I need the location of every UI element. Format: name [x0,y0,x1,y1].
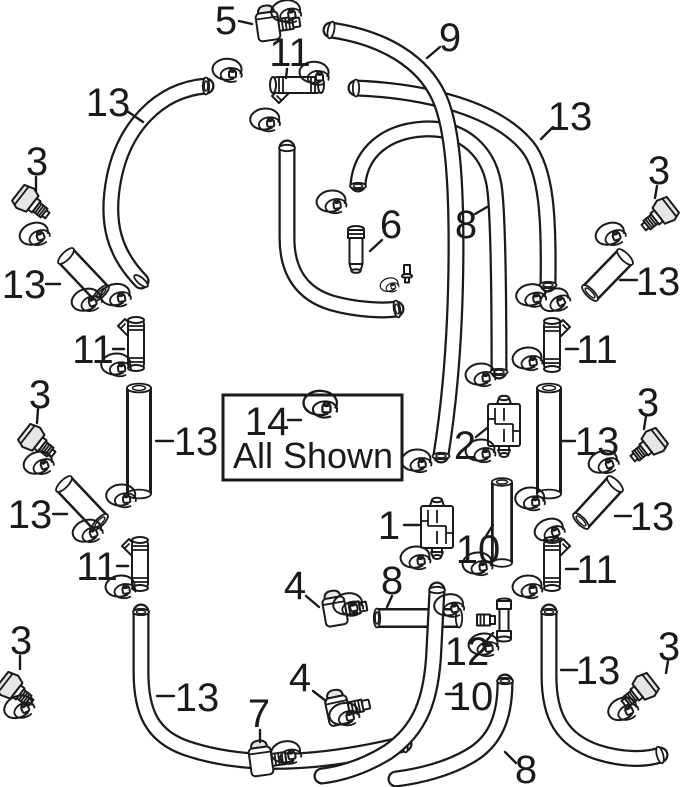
callout-4: 4 [289,656,311,700]
nipple-fitting-3-mid-left [16,422,61,465]
callout-11: 11 [576,328,618,372]
hose-clamp [249,107,280,133]
callout-13: 13 [575,420,620,464]
hose-clamp [17,219,52,251]
retainer-clip [379,276,400,295]
callout-leader-4 [306,596,319,607]
hose-opening [204,81,208,91]
callout-13: 13 [636,260,681,304]
callout-10: 10 [456,528,501,572]
callout-11: 11 [72,328,114,372]
callout-13: 13 [576,649,621,693]
callout-3: 3 [29,373,51,417]
callout-3: 3 [10,619,32,663]
callout-8: 8 [381,559,403,603]
hose-clamp [511,346,543,373]
hose-opening [544,610,553,614]
parts-diagram: 14 All Shown 511913133131113313113137448… [0,0,688,787]
hose-clamp [464,362,496,389]
callout-3: 3 [658,625,680,669]
tee-fitting-11-right-lower [544,537,570,591]
hose-opening [436,454,446,458]
hose-opening [136,610,145,614]
hose-opening [543,283,553,287]
legend-box: 14 All Shown [223,391,402,480]
callout-11: 11 [76,545,118,589]
inline-fitting-6 [348,226,364,273]
callout-11: 11 [576,548,618,592]
callout-5: 5 [215,0,237,43]
tube-opening [497,480,508,484]
callout-13: 13 [2,263,47,307]
connector-fitting-12 [497,599,511,642]
nipple-fitting-3-top-left [10,183,55,226]
callout-leader-2 [476,428,487,437]
nipple-fitting-3-top-right [636,195,681,238]
barb-fitting-12-side [477,615,495,626]
hose-opening [353,80,359,97]
hose-clamp [315,189,347,216]
callout-4: 4 [284,564,306,608]
tube-13-lower-left-angled [54,474,111,533]
callout-leader-4 [313,691,326,701]
tee-fitting-11-right-upper [544,318,570,372]
hose-clamp [511,574,543,601]
vent-fitting-small [402,265,412,283]
callout-13: 13 [86,81,131,125]
callout-3: 3 [637,381,659,425]
tube-13-left-vertical [127,384,151,499]
callout-leader-5 [239,21,252,24]
hose-8-middle [374,609,462,628]
tube-13-lower-right-angled [571,474,626,532]
callout-1: 1 [378,504,400,548]
hose-clamp [593,219,628,251]
callout-12: 12 [445,630,490,674]
callout-2: 2 [454,424,476,468]
callout-13: 13 [175,676,220,720]
callout-10: 10 [449,675,494,719]
tube-opening [543,386,556,391]
callout-3: 3 [26,140,48,184]
hose-opening [500,679,509,683]
hose-8-upper [350,129,508,375]
callout-13: 13 [630,495,675,539]
hose-clamp [399,545,431,572]
check-valve-2 [488,396,520,457]
callout-3: 3 [648,149,670,193]
tube-13-upper-right-angled [580,247,636,304]
parts-diagram-page: 14 All Shown 511913133131113313113137448… [0,0,688,787]
tube-opening [133,386,146,391]
callout-8: 8 [515,748,537,787]
hose-opening [375,612,379,624]
hose-clamp [213,59,242,82]
hose-opening [429,587,445,593]
hose-opening [353,184,362,188]
callout-7: 7 [248,692,270,736]
callout-13: 13 [174,420,219,464]
callout-13: 13 [548,95,593,139]
legend-box-label: All Shown [233,435,393,476]
callout-13: 13 [8,493,53,537]
callout-11: 11 [269,31,311,75]
tube-13-upper-left-angled [56,246,112,304]
callout-8: 8 [455,203,477,247]
nipple-fitting-3-mid-right [625,426,670,469]
callout-6: 6 [380,203,402,247]
hose-clamp [514,486,545,512]
tube-13-right-vertical [537,384,561,499]
callout-9: 9 [439,16,461,60]
hose-opening [279,145,295,151]
hose-clamp [400,448,432,475]
